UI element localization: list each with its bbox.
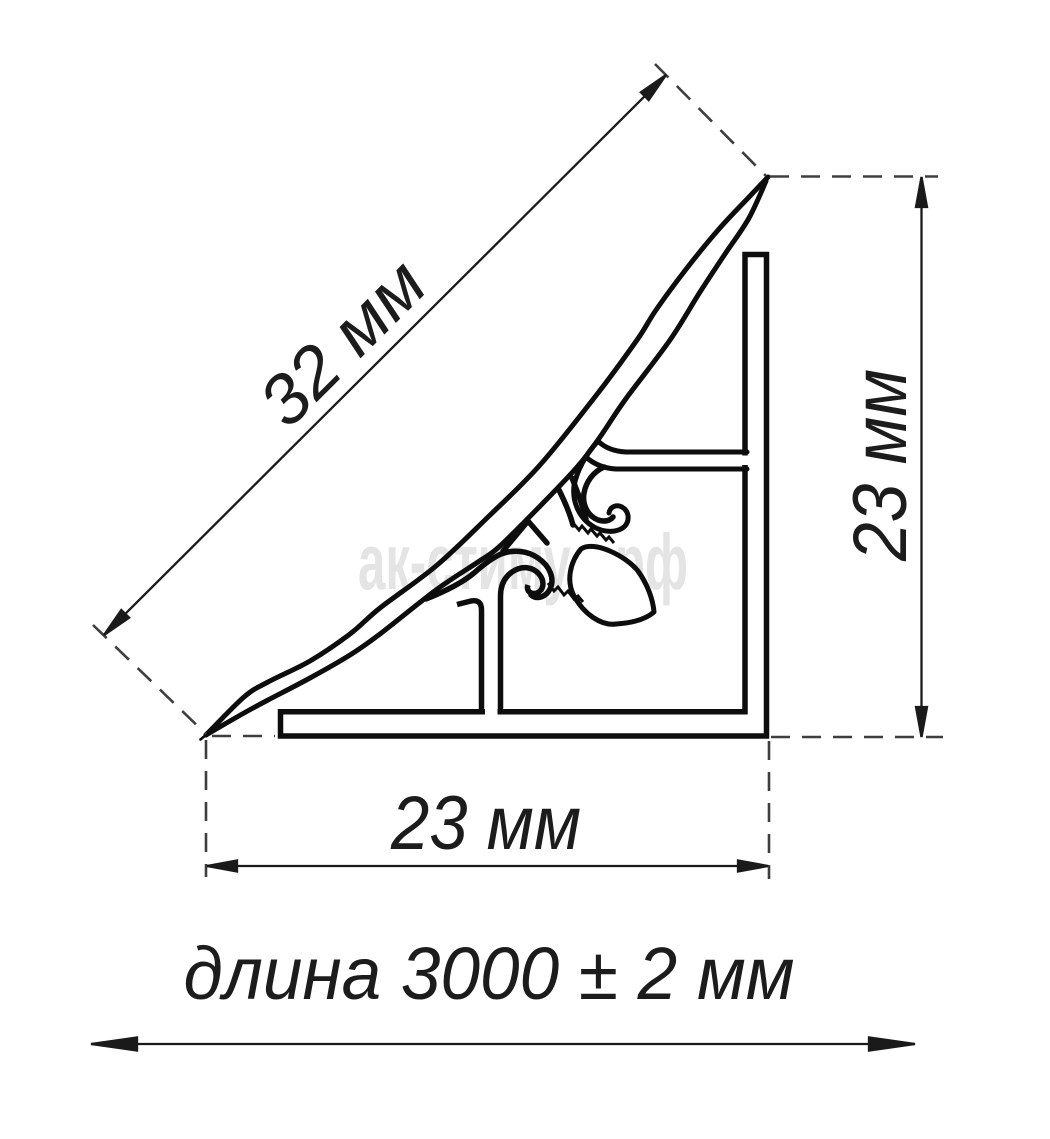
svg-text:длина 3000 ± 2 мм: длина 3000 ± 2 мм (184, 932, 795, 1015)
svg-text:23 мм: 23 мм (838, 369, 923, 562)
svg-text:23 мм: 23 мм (390, 781, 581, 866)
